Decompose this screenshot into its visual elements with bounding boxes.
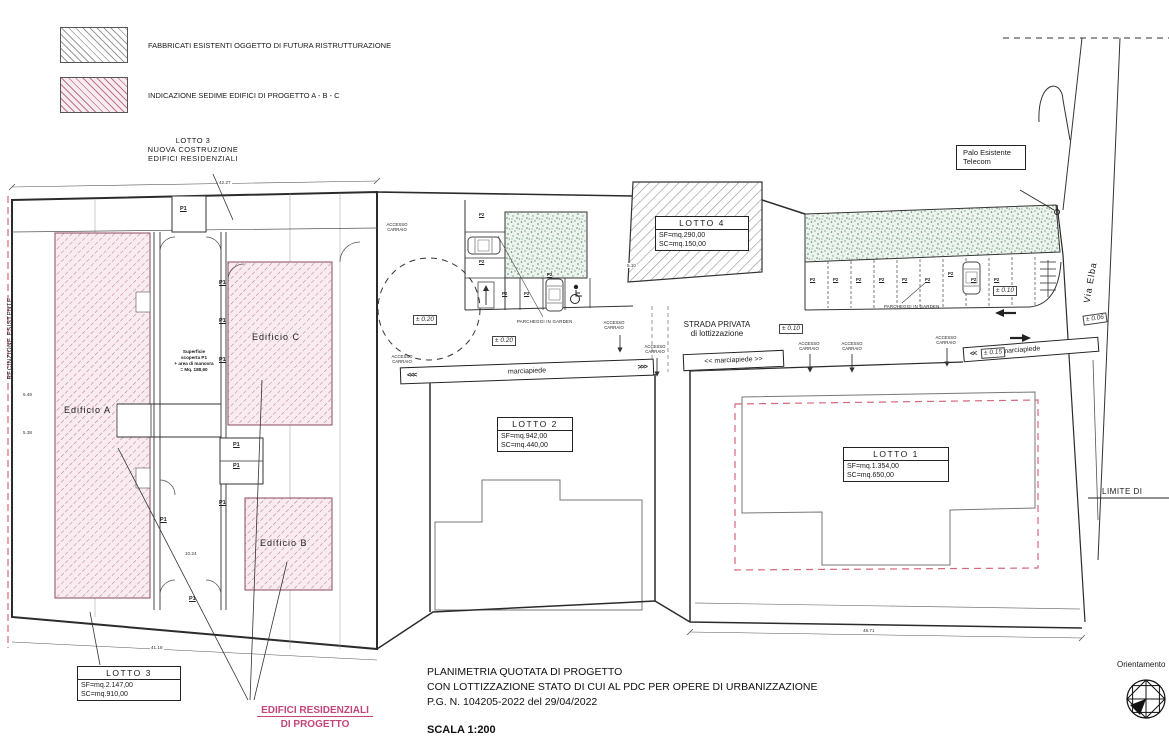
- disabled-parking-icon: [571, 285, 583, 304]
- lotto2-building-outline: [435, 480, 642, 610]
- compass-icon: [1127, 680, 1165, 718]
- site-plan-canvas: FABBRICATI ESISTENTI OGGETTO DI FUTURA R…: [0, 0, 1169, 755]
- garden-strip-left: [505, 212, 587, 278]
- lotto1-project-dashed: [735, 400, 1038, 570]
- lotto1-building-outline: [742, 392, 1035, 565]
- building-c-shape: [228, 262, 332, 425]
- garden-strip-right: [805, 205, 1060, 262]
- building-b-shape: [245, 498, 332, 590]
- site-plan-drawing: [0, 0, 1169, 755]
- lotto4-building-shape: [628, 182, 762, 282]
